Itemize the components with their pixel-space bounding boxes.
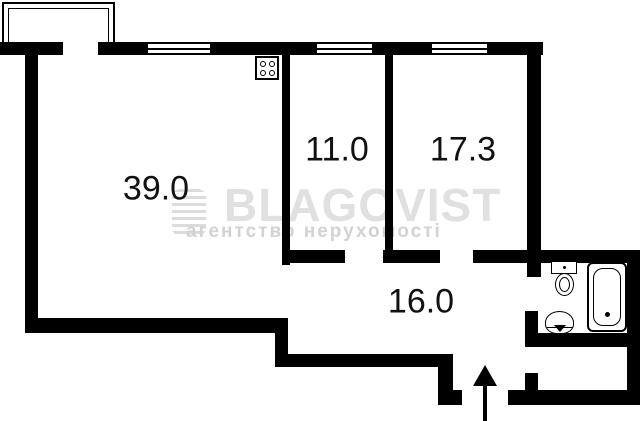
room-area-label-room-39: 39.0 xyxy=(123,170,189,209)
window xyxy=(148,42,210,55)
stove-burner-icon xyxy=(260,70,266,76)
entrance-arrow-icon xyxy=(473,365,497,386)
wall-segment xyxy=(525,373,538,392)
window xyxy=(432,42,487,55)
bathtub-basin-icon xyxy=(593,268,621,326)
bathtub-icon xyxy=(587,262,627,332)
window xyxy=(317,42,372,55)
room-area-label-room-11: 11.0 xyxy=(305,131,369,170)
floor-plan: BLAGOVIST агентство нерухомості 39.011.0… xyxy=(0,0,640,421)
room-area-label-hallway-16: 16.0 xyxy=(388,283,454,322)
watermark-tagline: агентство нерухомості xyxy=(186,222,442,241)
wall-segment xyxy=(210,42,317,55)
stove-burner-icon xyxy=(269,70,275,76)
wall-segment xyxy=(283,354,453,367)
wall-segment xyxy=(282,55,290,265)
sink-icon xyxy=(545,311,574,334)
wall-segment xyxy=(25,318,288,333)
wall-segment xyxy=(282,250,345,263)
wall-segment xyxy=(527,42,541,277)
room-area-label-room-17: 17.3 xyxy=(430,131,496,170)
wall-segment xyxy=(25,55,38,333)
stove-icon xyxy=(255,56,279,80)
wall-segment xyxy=(0,42,63,55)
wall-segment xyxy=(98,42,148,55)
stove-burner-icon xyxy=(260,61,266,67)
entrance-arrow-shaft xyxy=(483,384,487,421)
wall-segment xyxy=(385,55,393,250)
wall-segment xyxy=(525,333,640,347)
wall-segment xyxy=(383,250,440,263)
wall-segment xyxy=(508,390,640,405)
wall-segment xyxy=(438,390,462,405)
toilet-bowl-icon xyxy=(555,273,574,296)
stove-burner-icon xyxy=(269,61,275,67)
wall-segment xyxy=(372,42,432,55)
wall-segment xyxy=(627,250,640,405)
balcony xyxy=(2,2,115,43)
